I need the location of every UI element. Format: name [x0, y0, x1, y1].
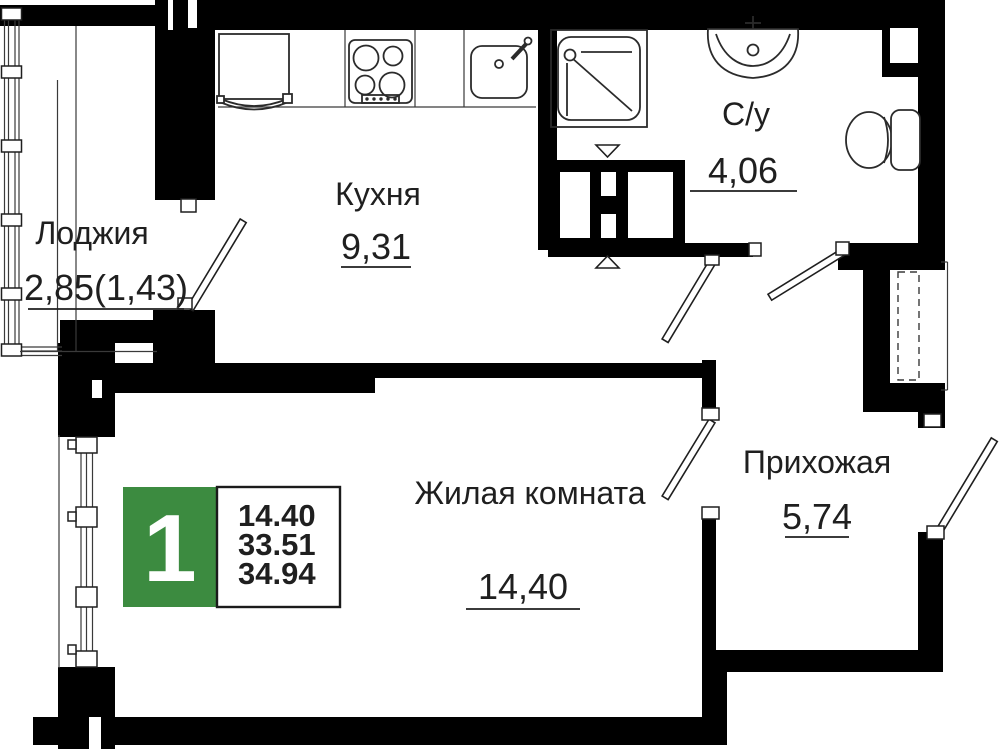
type-badge: 1 14.40 33.51 34.94 [123, 487, 340, 607]
toilet-icon [846, 110, 920, 170]
hallway-name: Прихожая [743, 444, 891, 480]
duct-dashed-icon [898, 272, 919, 380]
floor-plan: Лоджия 2,85(1,43) Кухня 9,31 С/у 4,06 Жи… [0, 0, 1000, 749]
label-bathroom: С/у 4,06 [690, 96, 797, 191]
bathroom-name: С/у [722, 96, 770, 132]
label-kitchen: Кухня 9,31 [335, 176, 421, 267]
living-room-name: Жилая комната [414, 475, 645, 511]
kitchen-area: 9,31 [341, 226, 411, 267]
stove-icon [349, 40, 412, 103]
bathroom-area: 4,06 [708, 150, 778, 191]
loggia-door [187, 219, 246, 311]
fridge-icon [217, 34, 292, 110]
kitchen-name: Кухня [335, 176, 421, 212]
living-room-door [662, 419, 715, 499]
kitchen-fixtures [217, 30, 536, 110]
living-room-area: 14,40 [478, 566, 568, 607]
label-living-room: Жилая комната 14,40 [414, 475, 645, 609]
label-hallway: Прихожая 5,74 [743, 444, 891, 537]
floor-plan-svg: Лоджия 2,85(1,43) Кухня 9,31 С/у 4,06 Жи… [0, 0, 1000, 749]
ventilation-shaft [548, 145, 685, 268]
vent-arrow-up-icon [596, 256, 619, 268]
shower-icon [551, 30, 647, 127]
loggia-area: 2,85(1,43) [24, 267, 188, 308]
bathroom-door [768, 249, 845, 300]
badge-stat-total: 34.94 [238, 556, 316, 591]
kitchen-door [662, 259, 716, 342]
living-room-window [59, 435, 97, 668]
kitchen-sink-icon [471, 38, 532, 99]
badge-room-count: 1 [143, 495, 196, 602]
vent-arrow-down-icon [596, 145, 619, 157]
label-loggia: Лоджия 2,85(1,43) [24, 215, 188, 309]
hallway-area: 5,74 [782, 496, 852, 537]
walls [0, 0, 945, 749]
loggia-name: Лоджия [35, 215, 148, 251]
entrance-door [935, 438, 997, 535]
entry-duct-niche [898, 262, 948, 390]
